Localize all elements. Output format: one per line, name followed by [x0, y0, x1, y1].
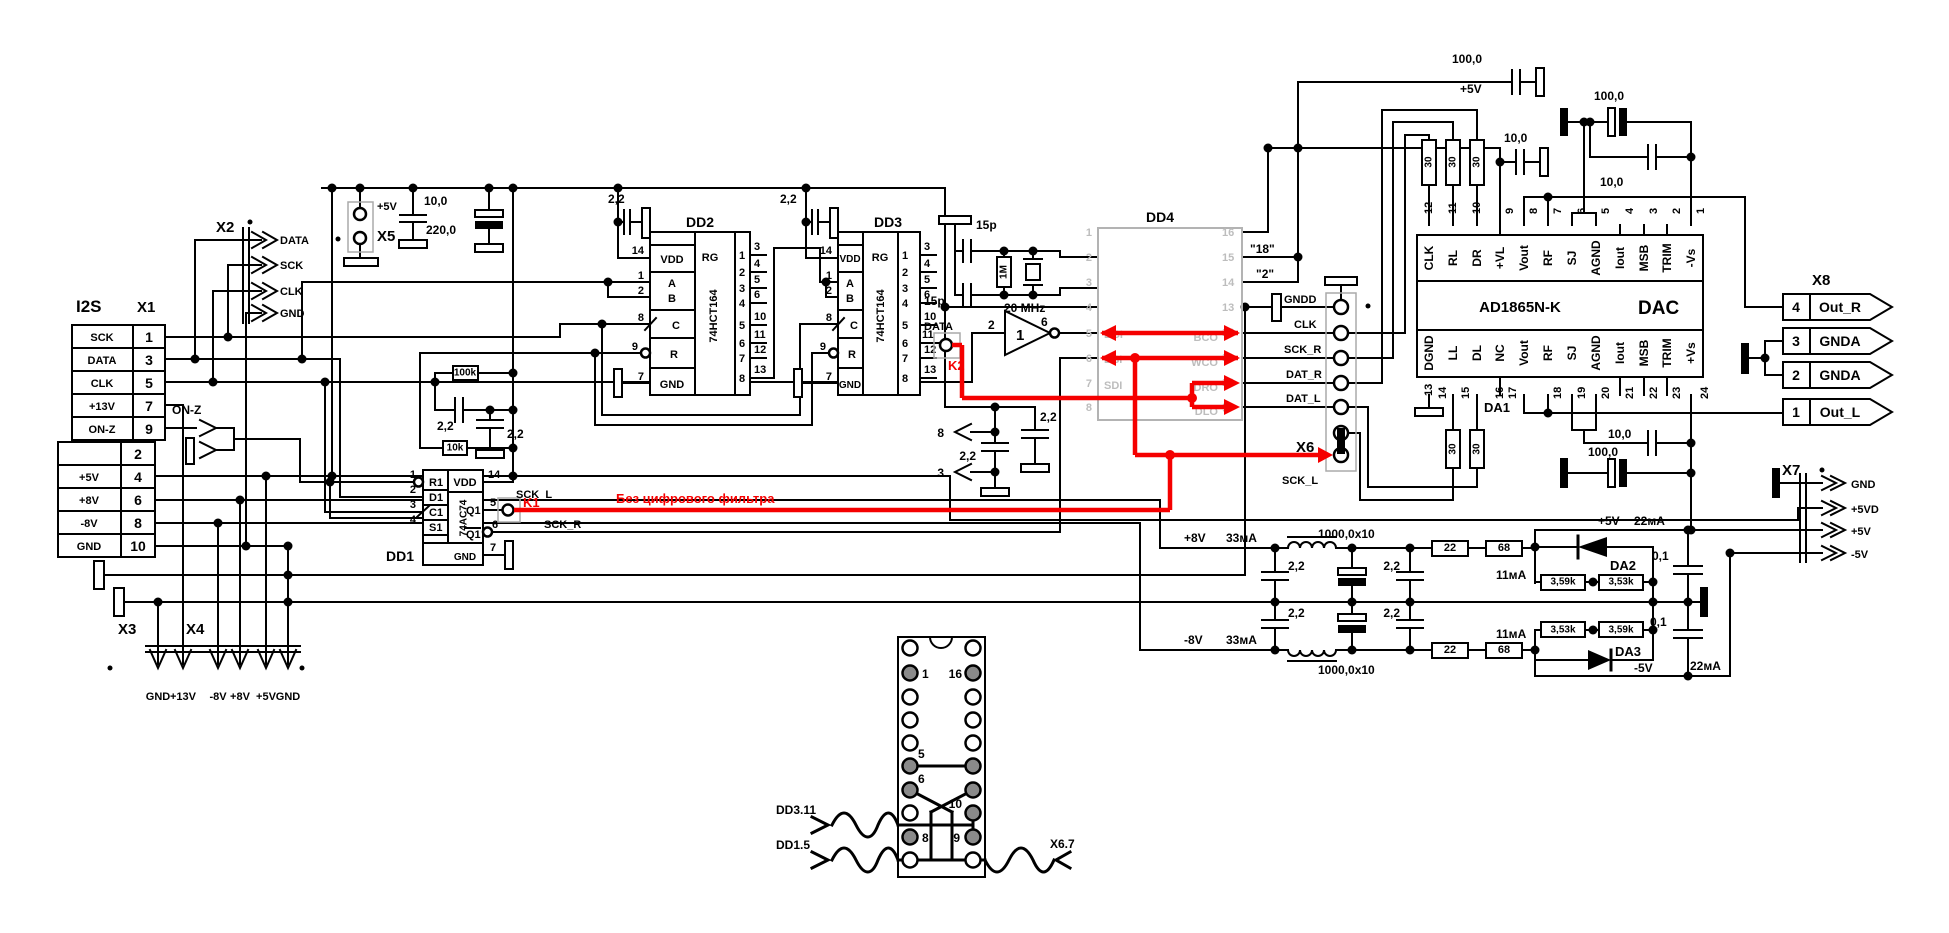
dac-pin-name: AGND	[1589, 240, 1603, 276]
dd1-pin1: 1	[410, 469, 416, 481]
dd1-pin6: 6	[492, 519, 498, 531]
x5-5v-label: +5V	[377, 201, 398, 213]
dac-pin-name: TRIM	[1660, 243, 1674, 272]
dd2-o4: 4	[754, 258, 761, 270]
dd3-b: B	[846, 293, 854, 305]
x1-row-pin: 2	[134, 446, 142, 462]
dac-pin-name: DGND	[1422, 335, 1436, 371]
dd4-rpin: 13	[1222, 302, 1234, 314]
dd3-i7: 7	[902, 353, 908, 365]
dac-pin-name: AGND	[1589, 335, 1603, 371]
dd2-ref: DD2	[686, 214, 714, 230]
dd3-i8: 8	[902, 373, 908, 385]
x7-5v: +5V	[1851, 526, 1872, 538]
dd2-b: B	[668, 293, 676, 305]
schematic-canvas: I2S X1 SCK DATA CLK +13V ON-Z 1 3 5 7 9 …	[0, 0, 1949, 933]
dd2-o13: 13	[754, 364, 766, 376]
x2-connector: X2 DATA SCK CLK GND	[216, 219, 309, 323]
cap-1000x10: 1000,0x10	[1318, 527, 1375, 541]
resistor-30: 30	[1472, 156, 1483, 168]
dac-part-number: AD1865N-K	[1479, 299, 1561, 316]
x1-row-label: GND	[77, 541, 102, 553]
dd2-o10: 10	[754, 311, 766, 323]
x8-pin: 3	[1792, 333, 1800, 349]
dd3-i2: 2	[902, 267, 908, 279]
x4-pin-p5: +5V	[256, 691, 277, 703]
dd1-q1: Q1	[466, 505, 481, 517]
dd2-vdd: VDD	[660, 254, 683, 266]
cap-2u2: 2,2	[437, 419, 454, 433]
cap-2u2: 2,2	[1040, 410, 1057, 424]
dac-pin-name: -Vs	[1684, 248, 1698, 267]
dac-pin-num: 4	[1624, 207, 1636, 214]
dd3-a: A	[846, 278, 854, 290]
resistor-353k: 3,53k	[1550, 625, 1575, 636]
x5-connector: +5V X5 10,0 220,0	[336, 194, 457, 252]
x1-row-label: CLK	[91, 378, 114, 390]
x3-x4-connectors: X3 X4 GND +13V -8V +8V +5V GND	[108, 621, 305, 703]
resistor-353k: 3,53k	[1608, 577, 1633, 588]
dd3-i6: 6	[902, 338, 908, 350]
dac-schematic: I2S X1 SCK DATA CLK +13V ON-Z 1 3 5 7 9 …	[0, 0, 1949, 933]
dd1-pin2: 2	[410, 484, 416, 496]
dd1-d1: D1	[429, 492, 443, 504]
cap-2u2: 2,2	[959, 449, 976, 463]
cap-2u2: 2,2	[1288, 606, 1305, 620]
resistor-30: 30	[1472, 443, 1483, 455]
dac-pin-name: LL	[1446, 346, 1460, 361]
dac-pin-num: 17	[1507, 387, 1519, 399]
x3-label: X3	[118, 621, 136, 638]
da3-ref: DA3	[1615, 644, 1641, 659]
i33-label: 33мА	[1226, 531, 1257, 545]
cap-10uF: 10,0	[1600, 175, 1624, 189]
resistor-22: 22	[1444, 542, 1456, 554]
dd4-lpin: 7	[1086, 378, 1092, 390]
dd4-lpin: 1	[1086, 227, 1092, 239]
dd4-lpin: 2	[1086, 252, 1092, 264]
p5-label: +5V	[1460, 82, 1482, 96]
dac-pin-name: CLK	[1422, 245, 1436, 270]
i22-label: 22мА	[1690, 659, 1721, 673]
socket-pin6: 6	[918, 772, 925, 786]
cap-01: 0,1	[1650, 615, 1667, 629]
dd2-i8: 8	[739, 373, 745, 385]
dd2-o5: 5	[754, 274, 760, 286]
net-clk: CLK	[1294, 319, 1317, 331]
k2-data-label: DATA	[924, 321, 953, 333]
dac-pin-name: RF	[1541, 345, 1555, 361]
dd4-lpin: 4	[1086, 302, 1093, 314]
i33-label: 33мА	[1226, 633, 1257, 647]
x7-gnd: GND	[1851, 479, 1876, 491]
dd2-i1: 1	[739, 250, 745, 262]
onz-label: ON-Z	[172, 403, 201, 417]
resistor-30: 30	[1448, 443, 1459, 455]
x2-pin-gnd: GND	[280, 308, 305, 320]
no-filter-note: Без цифрового фильтра	[616, 491, 775, 506]
x8-pin: 4	[1792, 299, 1800, 315]
resistor-100k: 100k	[454, 368, 477, 379]
dd1-gnd: GND	[454, 552, 476, 563]
x1-row-pin: 5	[145, 375, 153, 391]
dd3-r: R	[848, 349, 856, 361]
dd4-rpin: 16	[1222, 227, 1234, 239]
x1-row-label: SCK	[90, 332, 113, 344]
dd3-gnd: GND	[839, 380, 861, 391]
x5-label: X5	[377, 228, 395, 245]
net-gndd: GNDD	[1284, 294, 1316, 306]
dac-function: DAC	[1638, 298, 1679, 319]
x1-row-label: DATA	[88, 355, 117, 367]
p8-label: +8V	[1184, 531, 1206, 545]
x4-label: X4	[186, 621, 205, 638]
resistor-10k: 10k	[447, 443, 464, 454]
dd3-rg: RG	[872, 252, 889, 264]
dac-pin-name: DR	[1470, 249, 1484, 267]
x1-row-label: +8V	[79, 495, 100, 507]
x7-connector: X7 GND +5VD +5V -5V	[1782, 462, 1879, 561]
dd2-pin1: 1	[638, 270, 644, 282]
dac-pin-name: MSB	[1637, 339, 1651, 366]
x1-row-pin: 3	[145, 352, 153, 368]
dd3-pin1: 1	[826, 270, 832, 282]
dac-pin-num: 20	[1600, 387, 1612, 399]
cap-100uF: 100,0	[1588, 445, 1618, 459]
x4-pin-p8: +8V	[230, 691, 251, 703]
dd1-pin5: 5	[490, 497, 496, 509]
socket-detail: 1 16 5 6 10 8 9 DD3.11 DD1.5 X6.7	[776, 637, 1075, 877]
net-sckr: SCK_R	[1284, 344, 1321, 356]
socket-pin5: 5	[918, 747, 925, 761]
dd3-c: C	[850, 320, 858, 332]
x2-pin-clk: CLK	[280, 286, 303, 298]
dac-pin-num: 14	[1437, 386, 1449, 399]
dd3-o5: 5	[924, 274, 930, 286]
x1-row-label: -8V	[80, 518, 98, 530]
x1-row-pin: 10	[130, 538, 146, 554]
x1-connector: I2S X1 SCK DATA CLK +13V ON-Z 1 3 5 7 9 …	[58, 297, 165, 557]
xtal-20mhz: 20 MHz	[1004, 301, 1045, 315]
x2-pin-sck: SCK	[280, 260, 303, 272]
dac-pin-name: RF	[1541, 250, 1555, 266]
dd1-pin7: 7	[490, 542, 496, 554]
dd3-i3: 3	[902, 283, 908, 295]
dac-pin-name: Iout	[1613, 342, 1627, 364]
dac-pin-name: DL	[1470, 345, 1484, 361]
x4-pin-gnd: GND	[276, 691, 301, 703]
socket-pin8: 8	[922, 831, 929, 845]
dd1-s1: S1	[429, 522, 442, 534]
dd3-pin7: 7	[826, 371, 832, 383]
dac-pin-num: 13	[1423, 384, 1435, 396]
dd4-rpin: 14	[1222, 277, 1235, 289]
dd4-mode2: "2"	[1256, 267, 1274, 281]
net-datr: DAT_R	[1286, 369, 1322, 381]
x1-row-pin: 8	[134, 515, 142, 531]
da2-ref: DA2	[1610, 558, 1636, 573]
dac-pin-num: 21	[1624, 387, 1636, 399]
x7-m5v: -5V	[1851, 549, 1869, 561]
dd4-lpin: 8	[1086, 402, 1092, 414]
dac-pin-num: 3	[1648, 208, 1660, 214]
dd2-part: 74HCT164	[708, 289, 720, 343]
crystal-osc	[939, 216, 1098, 307]
cap-100uF: 100,0	[1594, 89, 1624, 103]
x1-row-label: +5V	[79, 472, 100, 484]
dd4-rpin: 15	[1222, 252, 1234, 264]
dd4-lpin: 3	[1086, 277, 1092, 289]
arrow-8-label: 8	[937, 426, 944, 440]
x1-row-label: +13V	[89, 401, 116, 413]
dac-pin-name: Vout	[1517, 245, 1531, 271]
dac-pin-num: 8	[1528, 208, 1540, 214]
dd2-i4: 4	[739, 298, 746, 310]
dd2-o12: 12	[754, 344, 766, 356]
x8-pin: 2	[1792, 367, 1800, 383]
resistor-68: 68	[1498, 542, 1510, 554]
resistor-30: 30	[1424, 156, 1435, 168]
dac-pin-num: 24	[1699, 386, 1711, 399]
dd1-pin3: 3	[410, 499, 416, 511]
dd2-pin7: 7	[638, 371, 644, 383]
cap-10uF: 10,0	[424, 194, 448, 208]
cap-100uF: 100,0	[1452, 52, 1482, 66]
dd4-chip: DD4 1 2 3 4 5 6 7 8 16 15 14 13 12 11 10…	[1086, 209, 1322, 420]
inv-out-pin: 6	[1041, 315, 1048, 329]
dac-pin-name: NC	[1493, 344, 1507, 362]
dac-pin-num: 6	[1576, 208, 1588, 214]
pin1-mark	[248, 220, 253, 225]
dac-pin-num: 1	[1695, 208, 1707, 214]
dac-pin-num: 10	[1471, 202, 1483, 214]
power-filter	[1262, 537, 1522, 661]
dd2-i3: 3	[739, 283, 745, 295]
dac-pin-num: 22	[1648, 387, 1660, 399]
dd3-o13: 13	[924, 364, 936, 376]
cap-15p: 15p	[976, 218, 997, 232]
socket-pin9: 9	[953, 831, 960, 845]
x2-pin-data: DATA	[280, 235, 309, 247]
dac-pin-num: 12	[1423, 202, 1435, 214]
i11-label: 11мА	[1496, 627, 1527, 641]
socket-dd15: DD1.5	[776, 838, 810, 852]
i11-label: 11мА	[1496, 568, 1527, 582]
dd3-pin9: 9	[820, 341, 826, 353]
x1-row-pin: 7	[145, 398, 153, 414]
dd3-i1: 1	[902, 250, 908, 262]
cap-1000x10: 1000,0x10	[1318, 663, 1375, 677]
dd4-mode18: "18"	[1250, 242, 1275, 256]
arrow-3-label: 3	[937, 466, 944, 480]
resistor-68: 68	[1498, 644, 1510, 656]
i2s-label: I2S	[76, 297, 102, 316]
inv-gate-label: 1	[1016, 327, 1024, 344]
cap-10uF: 10,0	[1608, 427, 1632, 441]
dd4-sig-sdi: SDI	[1104, 380, 1122, 392]
dac-pin-num: 11	[1447, 202, 1459, 214]
socket-pin1: 1	[922, 667, 929, 681]
dac-pin-num: 2	[1671, 208, 1683, 214]
dd2-o11: 11	[754, 329, 766, 341]
socket-dd311: DD3.11	[776, 803, 816, 817]
dd2-o3: 3	[754, 241, 760, 253]
x1-row-pin: 1	[145, 329, 153, 345]
dac-pin-name: +VL	[1493, 247, 1507, 269]
dd3-i5: 5	[902, 320, 908, 332]
dd1-r1: R1	[429, 477, 443, 489]
x8-pin: 1	[1792, 404, 1800, 420]
x1-row-pin: 9	[145, 421, 153, 437]
dac-pin-num: 19	[1576, 387, 1588, 399]
dd2-pin9: 9	[632, 341, 638, 353]
dd2-pin8: 8	[638, 312, 644, 324]
dd3-i4: 4	[902, 298, 909, 310]
dd2-i2: 2	[739, 267, 745, 279]
dac-pin-name: SJ	[1565, 346, 1579, 361]
dac-pin-num: 18	[1552, 387, 1564, 399]
cap-220uF: 220,0	[426, 223, 456, 237]
socket-pin10: 10	[949, 797, 963, 811]
dd3-part: 74HCT164	[875, 289, 887, 343]
dac-pin-name: TRIM	[1660, 338, 1674, 367]
dd3-o3: 3	[924, 241, 930, 253]
cap-2u2: 2,2	[780, 192, 797, 206]
x4-pin-m8: -8V	[209, 691, 227, 703]
dd1-c1: C1	[429, 507, 443, 519]
x8-gnda: GNDA	[1819, 333, 1860, 349]
net-datl: DAT_L	[1286, 393, 1321, 405]
dd2-a: A	[668, 278, 676, 290]
x8-outl: Out_L	[1820, 404, 1861, 420]
dd2-c: C	[672, 320, 680, 332]
dac-pin-num: 16	[1494, 387, 1506, 399]
dac-pin-num: 5	[1600, 208, 1612, 214]
dac-pin-name: +Vs	[1684, 342, 1698, 364]
dac-pin-name: MSB	[1637, 244, 1651, 271]
dac-pin-name: Vout	[1517, 340, 1531, 366]
x8-label: X8	[1812, 272, 1830, 289]
dac-pin-num: 23	[1671, 387, 1683, 399]
dd1-ref: DD1	[386, 548, 414, 564]
cap-2u2: 2,2	[1383, 559, 1400, 573]
x7-5vd: +5VD	[1851, 504, 1879, 516]
dd3-vdd: VDD	[839, 254, 860, 265]
dd3-pin8: 8	[826, 312, 832, 324]
x1-row-label: ON-Z	[89, 424, 116, 436]
x1-row-pin: 6	[134, 492, 142, 508]
x8-outr: Out_R	[1819, 299, 1861, 315]
dac-pin-num: 9	[1504, 208, 1516, 214]
dd4-lpin: 5	[1086, 328, 1092, 340]
dd2-pin2: 2	[638, 285, 644, 297]
dd2-o6: 6	[754, 289, 760, 301]
dd1-q1n: Q1	[466, 529, 481, 541]
x7-label: X7	[1782, 462, 1800, 479]
dd4-lpin: 6	[1086, 353, 1092, 365]
x1-label: X1	[137, 299, 155, 316]
net-sckl: SCK_L	[1282, 475, 1318, 487]
filter-labels: +8V 33мА -8V 33мА 1000,0x10 1000,0x10 2,…	[1184, 514, 1721, 677]
x3-pin-gnd: GND	[146, 691, 171, 703]
x8-gnda: GNDA	[1819, 367, 1860, 383]
resistor-1M: 1M	[999, 265, 1010, 279]
dd1-pin14: 14	[488, 469, 501, 481]
m8-label: -8V	[1184, 633, 1203, 647]
socket-pin16: 16	[949, 667, 963, 681]
cap-2u2: 2,2	[608, 192, 625, 206]
resistor-359k: 3,59k	[1550, 577, 1575, 588]
socket-x67: X6.7	[1050, 837, 1075, 851]
cap-2u2: 2,2	[1383, 606, 1400, 620]
cap-2u2: 2,2	[507, 427, 524, 441]
x2-label: X2	[216, 219, 234, 236]
dd3-ref: DD3	[874, 214, 902, 230]
dd3-pin14: 14	[820, 245, 833, 257]
dac-pin-num: 15	[1460, 387, 1472, 399]
dd2-i7: 7	[739, 353, 745, 365]
cap-15p: 15p	[924, 294, 945, 308]
dac-pin-num: 7	[1552, 208, 1564, 214]
i22-label: 22мА	[1634, 514, 1665, 528]
p5-label: +5V	[1598, 514, 1620, 528]
dac-chip: AD1865N-K DAC DA1 12 11 10 9 8 7 6 5 4 3…	[1417, 140, 1711, 468]
cap-10uF: 10,0	[1504, 131, 1528, 145]
resistor-30: 30	[1448, 156, 1459, 168]
da1-ref: DA1	[1484, 400, 1510, 415]
x3-pin-13v: +13V	[170, 691, 197, 703]
onz-jumper: ON-Z	[172, 403, 216, 464]
dac-pin-name: RL	[1446, 250, 1460, 266]
dd2-i5: 5	[739, 320, 745, 332]
dd2-pin14: 14	[632, 245, 645, 257]
resistor-359k: 3,59k	[1608, 625, 1633, 636]
dd2-i6: 6	[739, 338, 745, 350]
dd1-vdd: VDD	[453, 477, 476, 489]
dd1-sckr-label: SCK_R	[544, 519, 581, 531]
dac-pin-name: Iout	[1613, 247, 1627, 269]
dd1-pin4: 4	[410, 514, 417, 526]
dd2-r: R	[670, 349, 678, 361]
resistor-22: 22	[1444, 644, 1456, 656]
dd3-pin2: 2	[826, 285, 832, 297]
dd1-chip: 100k 2,2 2,2 10k R1 D1 C1 S1 VDD 74AC74 …	[386, 366, 581, 565]
dd3-o4: 4	[924, 258, 931, 270]
inv-in-pin: 2	[988, 318, 995, 332]
dd4-ref: DD4	[1146, 209, 1174, 225]
cap-2u2: 2,2	[1288, 559, 1305, 573]
cap-01: 0,1	[1652, 549, 1669, 563]
dac-pin-name: SJ	[1565, 251, 1579, 266]
x8-connector: X8 4 3 2 1 Out_R GNDA GNDA Out_L	[1783, 272, 1892, 425]
dd2-rg: RG	[702, 252, 719, 264]
dd2-gnd: GND	[660, 379, 685, 391]
m5-label: -5V	[1634, 661, 1653, 675]
x1-row-pin: 4	[134, 469, 142, 485]
